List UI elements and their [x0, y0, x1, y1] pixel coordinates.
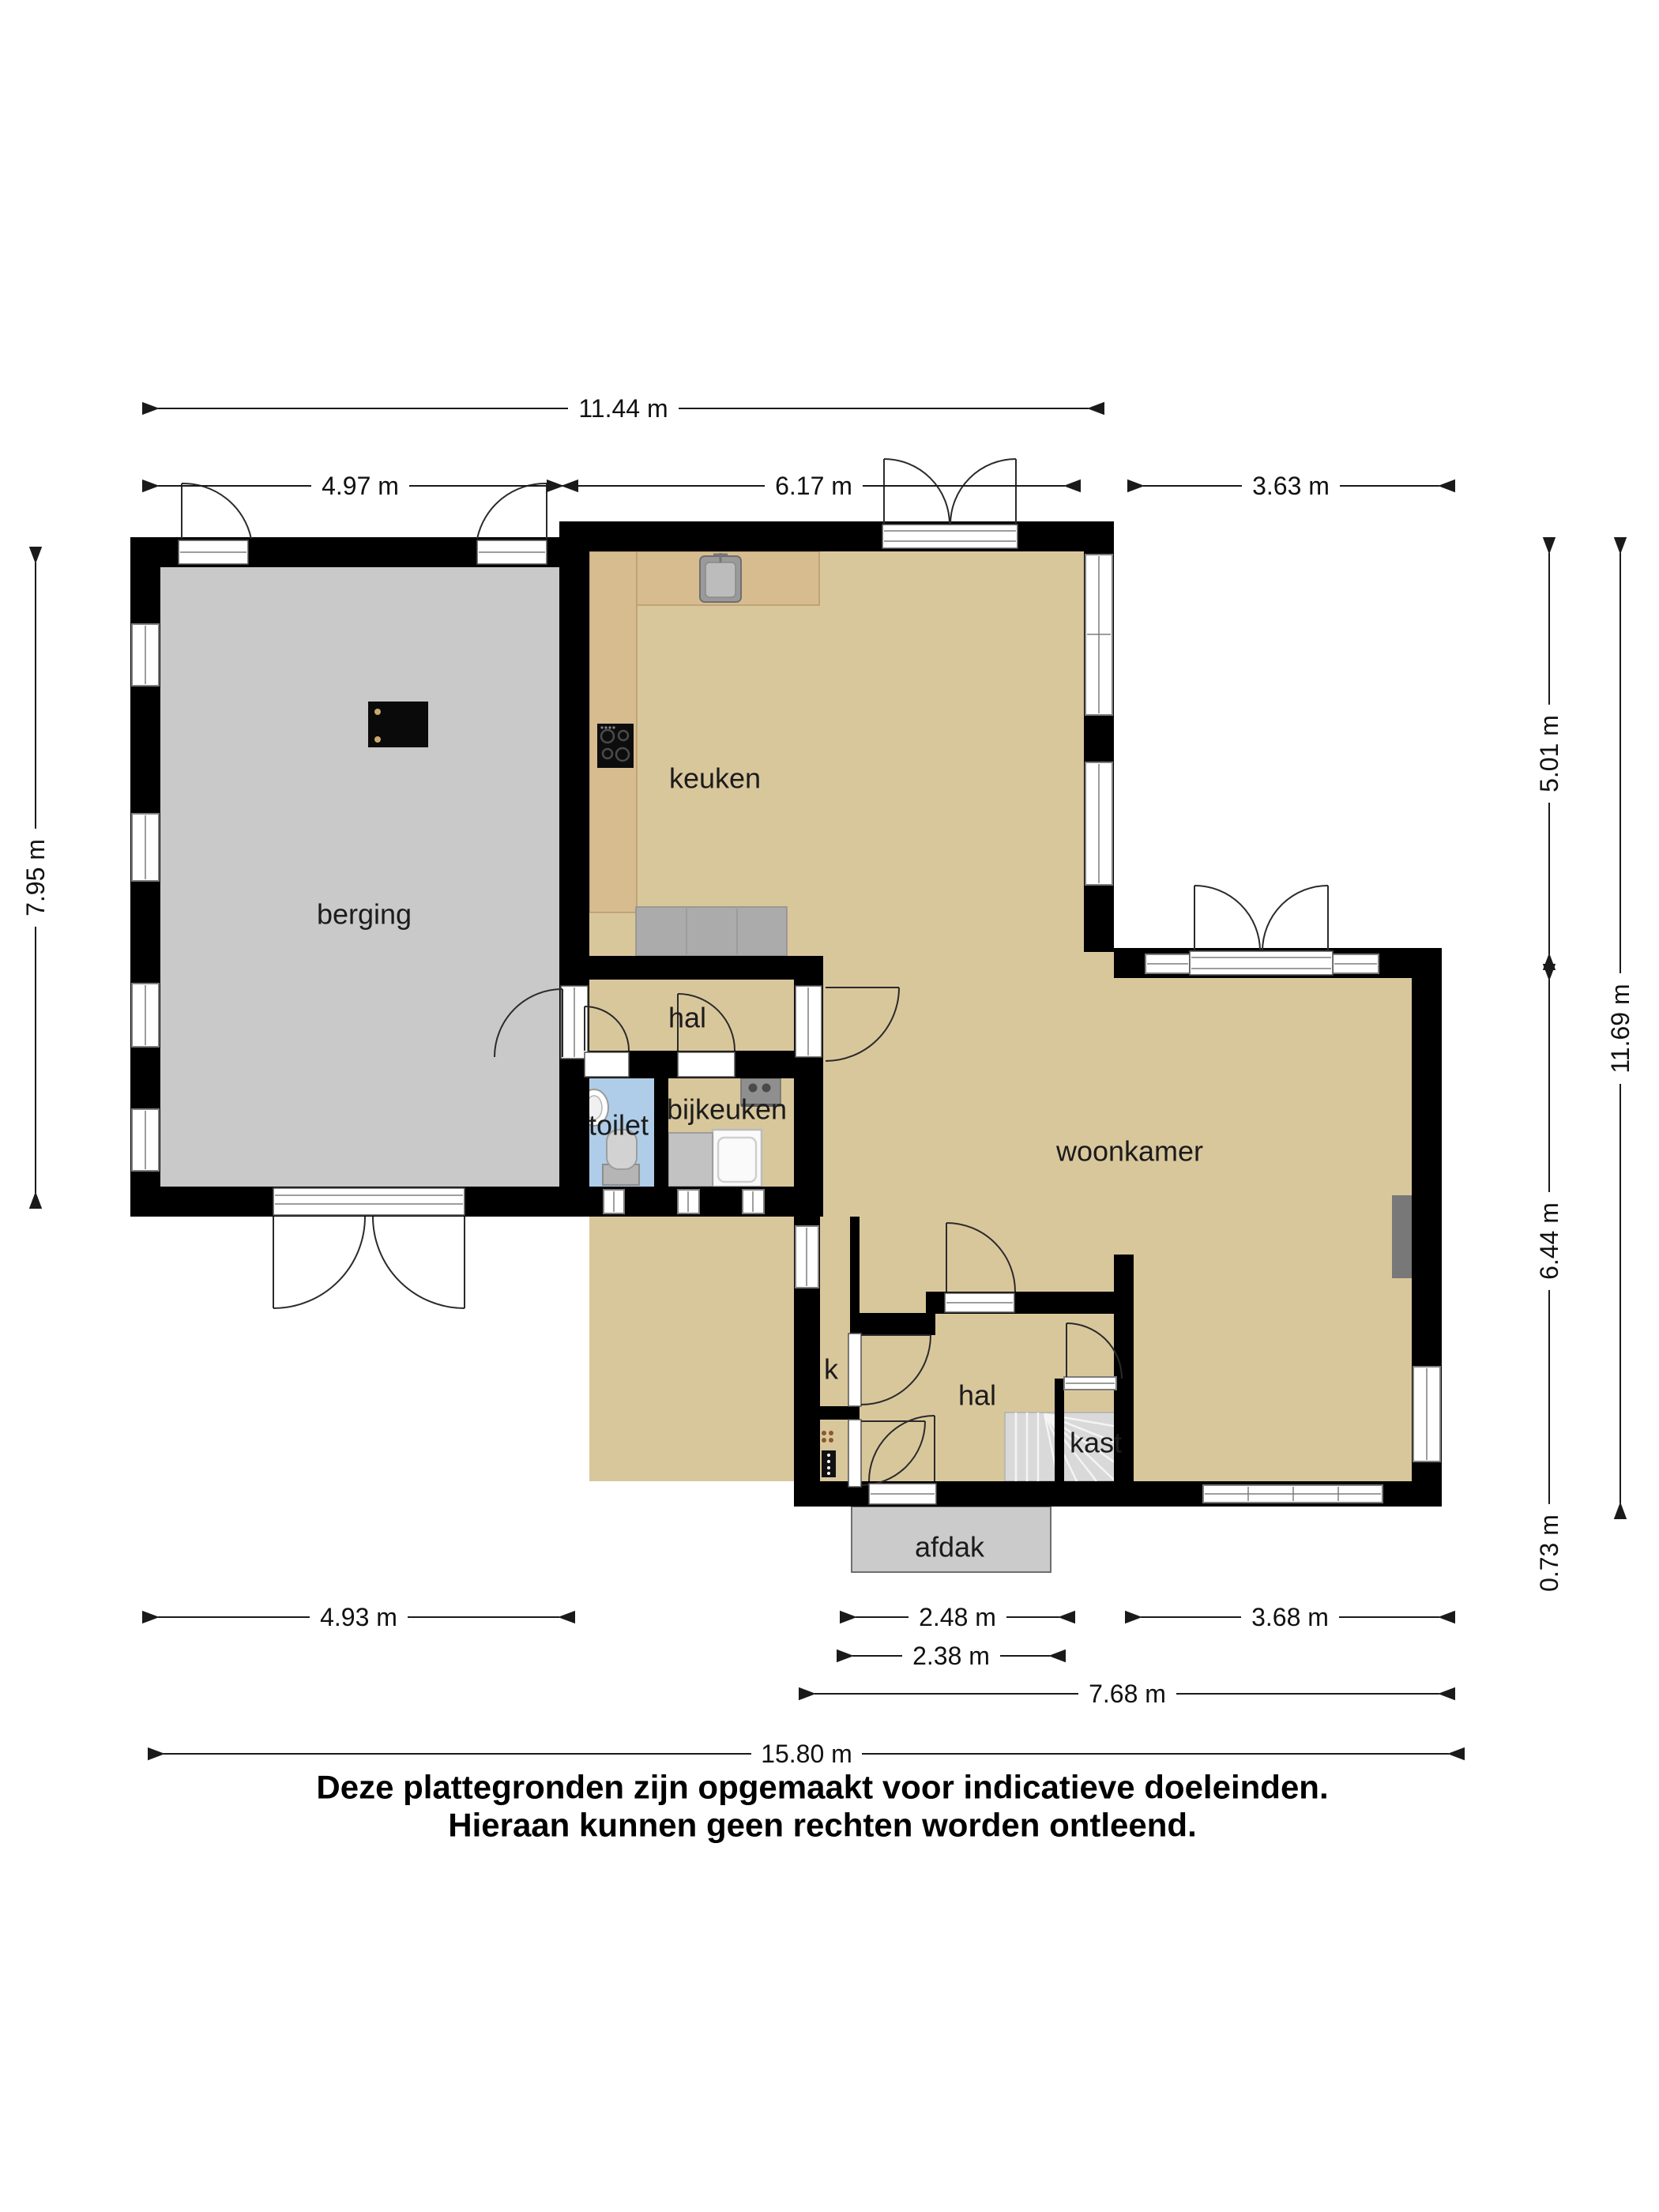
dim-right-woonkamer: 6.44 m	[1535, 980, 1563, 1503]
disclaimer-line-2: Hieraan kunnen geen rechten worden ontle…	[448, 1807, 1197, 1844]
bijkeuken-cabinet	[668, 1133, 713, 1187]
dim-right-uitbouw: 0.73 m	[1535, 1504, 1563, 1602]
room-label-meterkast: k	[824, 1353, 839, 1386]
room-open-space-keuken-woonkamer	[589, 551, 1084, 1481]
room-label-kast: kast	[1070, 1427, 1122, 1459]
dim-bottom-afdak: 2.38 m	[852, 1642, 1050, 1670]
svg-text:2.48 m: 2.48 m	[919, 1603, 996, 1631]
svg-text:3.68 m: 3.68 m	[1251, 1603, 1329, 1631]
room-label-bijkeuken: bijkeuken	[667, 1093, 787, 1126]
dim-top-total: 11.44 m	[158, 394, 1089, 423]
window-woonkamer-right	[1413, 1367, 1440, 1461]
svg-text:6.44 m: 6.44 m	[1535, 1202, 1563, 1280]
dim-top-rechts: 3.63 m	[1143, 472, 1439, 500]
window-berging-left-2	[132, 814, 159, 881]
window-woonkamer-bottom	[1203, 1485, 1382, 1503]
svg-text:11.69 m: 11.69 m	[1606, 984, 1635, 1073]
window-bijkeuken-1	[678, 1190, 699, 1213]
disclaimer: Deze plattegronden zijn opgemaakt voor i…	[316, 1769, 1328, 1844]
svg-text:7.95 m: 7.95 m	[21, 839, 50, 916]
room-berging	[160, 567, 559, 1187]
svg-text:4.93 m: 4.93 m	[320, 1603, 397, 1631]
dim-top-keuken: 6.17 m	[562, 472, 1065, 500]
window-woonkamer-top-left	[1145, 954, 1190, 973]
window-berging-left-3	[132, 984, 159, 1047]
dim-right-keuken: 5.01 m	[1535, 553, 1563, 954]
svg-text:0.73 m: 0.73 m	[1535, 1514, 1563, 1592]
wall-keuken-top	[559, 521, 1114, 551]
room-label-woonkamer: woonkamer	[1055, 1135, 1203, 1168]
door-berging-double	[273, 1188, 465, 1308]
svg-text:5.01 m: 5.01 m	[1535, 715, 1563, 792]
door-woonkamer-entry	[1190, 886, 1333, 975]
window-berging-left-4	[132, 1109, 159, 1171]
wall-berging-keuken	[559, 521, 589, 1217]
dim-right-total: 11.69 m	[1606, 553, 1635, 1503]
window-hal-onder-left	[796, 1226, 818, 1288]
door-keuken-french	[882, 459, 1018, 548]
svg-text:6.17 m: 6.17 m	[775, 472, 852, 500]
svg-text:4.97 m: 4.97 m	[322, 472, 399, 500]
cooktop	[597, 724, 634, 768]
room-label-toilet: toilet	[589, 1109, 649, 1142]
dim-top-berging: 4.97 m	[158, 472, 562, 500]
wall-meterkast-divider	[820, 1406, 860, 1420]
window-woonkamer-top-right	[1333, 954, 1379, 973]
window-keuken-right-1	[1085, 555, 1112, 715]
svg-text:15.80 m: 15.80 m	[761, 1740, 852, 1768]
dim-bottom-entree: 2.48 m	[856, 1603, 1059, 1631]
room-label-hal-boven: hal	[668, 1002, 706, 1034]
wall-hal-boven-top	[559, 956, 823, 980]
window-kast-top	[1064, 1377, 1116, 1390]
room-label-keuken: keuken	[669, 762, 761, 795]
floor-plan-canvas: berging keuken hal toilet bijkeuken woon…	[0, 0, 1659, 2212]
wall-hal-onder-step	[926, 1292, 935, 1335]
room-label-hal-onder: hal	[958, 1379, 996, 1412]
dim-bottom-berging: 4.93 m	[158, 1603, 559, 1631]
svg-text:3.63 m: 3.63 m	[1252, 472, 1330, 500]
svg-text:11.44 m: 11.44 m	[578, 394, 668, 423]
svg-text:2.38 m: 2.38 m	[912, 1642, 990, 1670]
room-label-berging: berging	[317, 898, 412, 931]
dim-left-berging: 7.95 m	[21, 562, 50, 1193]
window-toilet	[604, 1190, 624, 1213]
door-berging-top-1	[179, 483, 251, 564]
berging-workbench	[367, 700, 430, 749]
dim-bottom-span: 7.68 m	[814, 1680, 1439, 1708]
window-keuken-right-2	[1085, 762, 1112, 885]
door-berging-top-2	[477, 483, 547, 564]
room-label-afdak: afdak	[915, 1531, 985, 1563]
kitchen-sink	[700, 553, 741, 602]
washing-machine	[713, 1130, 762, 1187]
svg-text:7.68 m: 7.68 m	[1089, 1680, 1166, 1708]
dim-bottom-raam: 3.68 m	[1141, 1603, 1439, 1631]
floor-plan-page: berging keuken hal toilet bijkeuken woon…	[0, 0, 1659, 2212]
window-berging-left-1	[132, 624, 159, 686]
window-bijkeuken-2	[743, 1190, 764, 1213]
disclaimer-line-1: Deze plattegronden zijn opgemaakt voor i…	[316, 1769, 1328, 1806]
dim-bottom-total: 15.80 m	[164, 1740, 1449, 1768]
kitchen-base-cabinet	[636, 907, 787, 956]
wall-hal-onder-top-left	[858, 1313, 935, 1335]
